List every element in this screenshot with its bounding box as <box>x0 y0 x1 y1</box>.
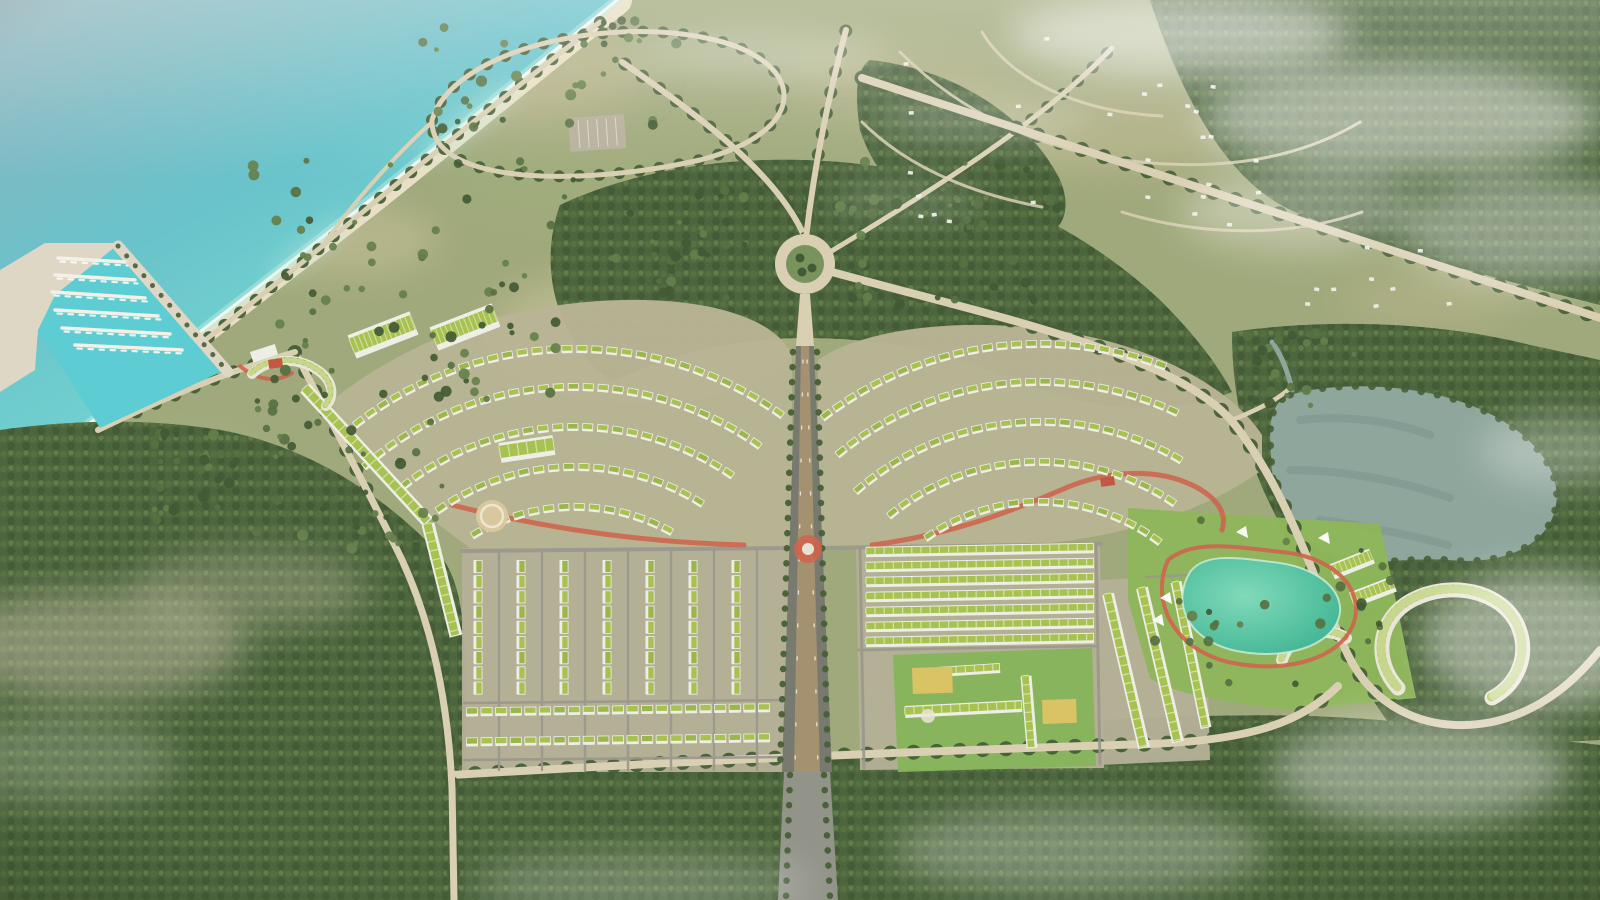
masterplan-scene <box>0 0 1600 900</box>
layer-atmosphere <box>0 0 1600 900</box>
vignette <box>0 0 1600 900</box>
aerial-render-image <box>0 0 1600 900</box>
